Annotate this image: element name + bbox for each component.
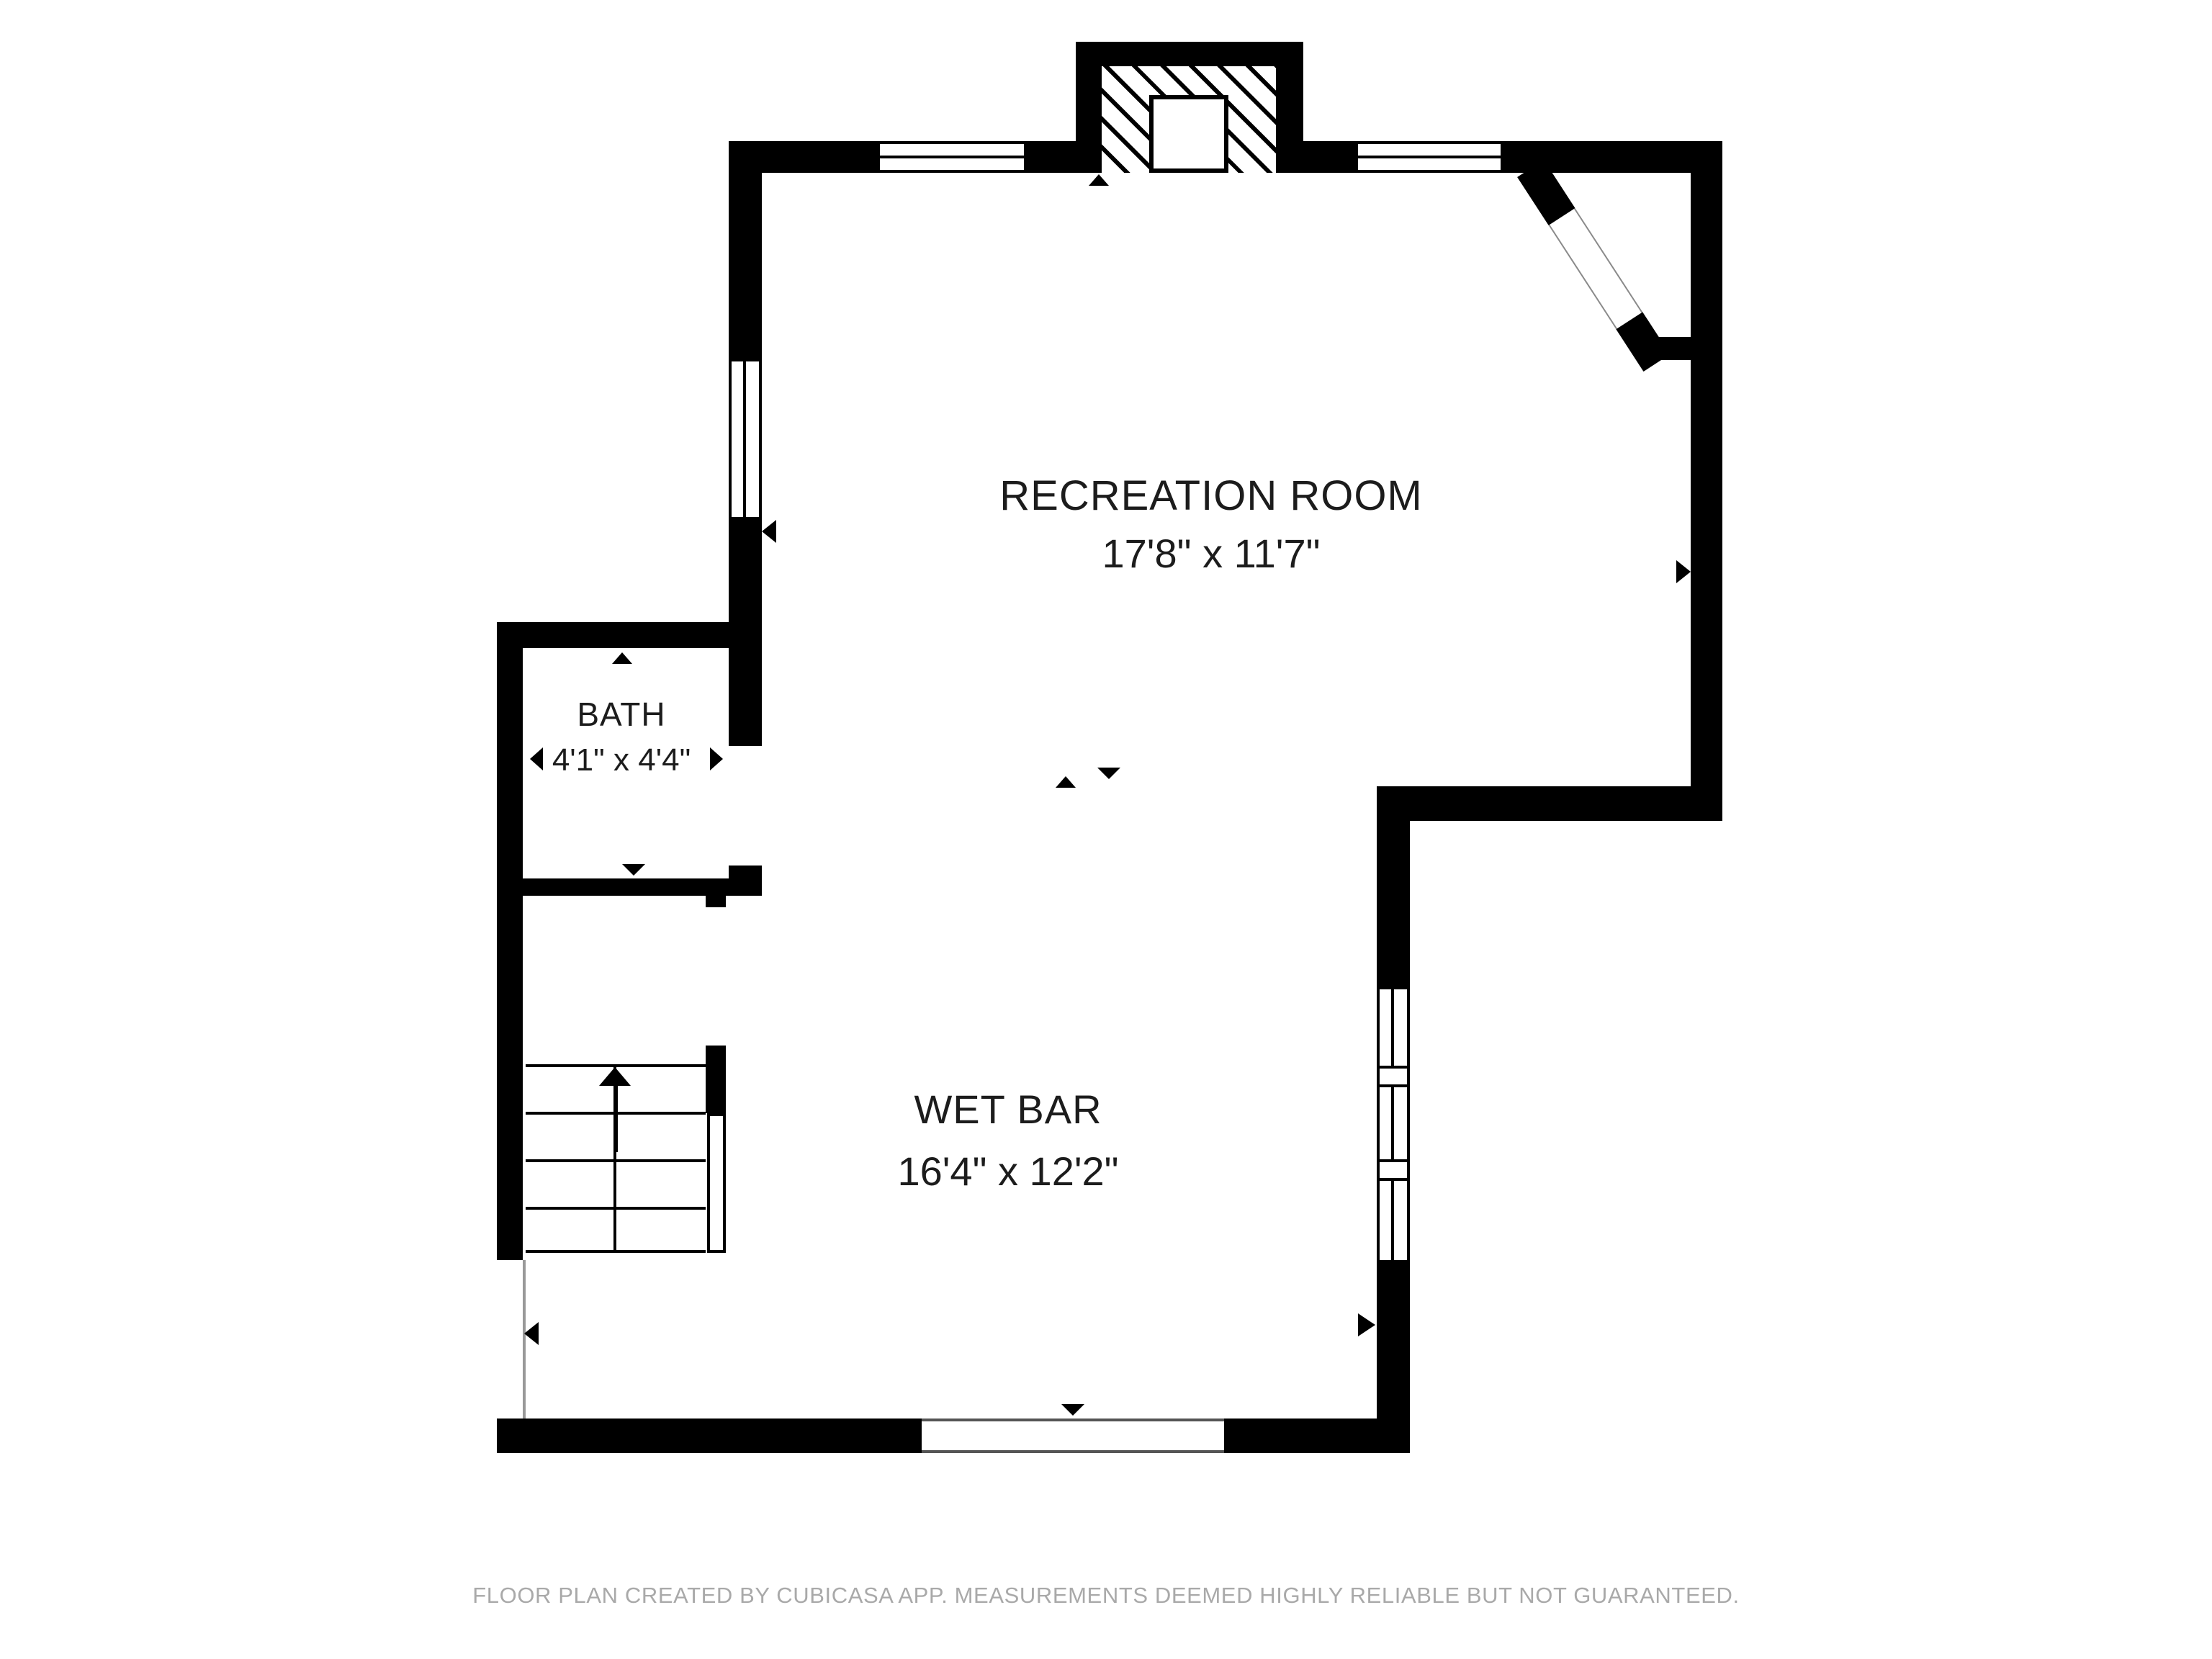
- room-label-wetbar: WET BAR 16'4" x 12'2": [792, 1089, 1224, 1194]
- dim-arrow-up-icon: [1056, 776, 1076, 788]
- stair-railing: [707, 1113, 726, 1253]
- wall-left-upper: [729, 141, 762, 353]
- staircase: [526, 1064, 706, 1253]
- dim-arrow-right-icon: [1358, 1313, 1375, 1336]
- window-divider: [1380, 1066, 1407, 1087]
- dim-arrow-left-icon: [762, 520, 776, 543]
- dim-arrow-left-icon: [524, 1322, 539, 1345]
- wall-left-mid: [729, 526, 762, 746]
- window-pane-line: [1391, 989, 1394, 1260]
- wall-bath-top: [497, 622, 729, 648]
- room-label-bath: BATH 4'1" x 4'4": [520, 697, 723, 778]
- window-top-left: [871, 141, 1033, 173]
- window-left: [729, 353, 762, 526]
- diagonal-door: [1517, 160, 1670, 372]
- bath-arrow-up-icon: [612, 652, 632, 664]
- wall-step: [1377, 786, 1722, 821]
- dim-arrow-up-icon: [1089, 174, 1109, 186]
- room-name: RECREATION ROOM: [999, 472, 1423, 521]
- bath-arrow-down-icon: [622, 864, 645, 876]
- room-name: WET BAR: [914, 1089, 1102, 1132]
- fireplace-flue: [1149, 95, 1228, 173]
- room-dimensions: 16'4" x 12'2": [897, 1151, 1118, 1194]
- window-top-right: [1349, 141, 1509, 173]
- dim-arrow-right-icon: [1676, 560, 1691, 583]
- window-wetbar: [1377, 986, 1410, 1263]
- window-pane-line: [743, 356, 746, 523]
- window-pane-line: [874, 155, 1030, 158]
- dim-arrow-down-icon: [1097, 768, 1120, 779]
- stair-arrow-stem: [613, 1084, 617, 1152]
- wall-bottom-right: [1224, 1419, 1410, 1453]
- wall-bottom-left: [497, 1419, 922, 1453]
- floor-plan: RECREATION ROOM 17'8" x 11'7" BATH 4'1" …: [0, 0, 2212, 1659]
- room-dimensions: 4'1" x 4'4": [552, 743, 691, 778]
- wall-wetbar-right-upper: [1377, 821, 1410, 986]
- door-leaf: [1549, 208, 1643, 329]
- scale-wrapper: RECREATION ROOM 17'8" x 11'7" BATH 4'1" …: [0, 0, 2212, 1659]
- wall-bath-left: [497, 622, 523, 1260]
- wall-bath-bottom: [497, 878, 762, 896]
- wall-stair-door-stub: [706, 896, 726, 907]
- window-bottom-opening: [922, 1419, 1224, 1453]
- window-pane-line: [1352, 155, 1506, 158]
- room-dimensions: 17'8" x 11'7": [1102, 530, 1321, 579]
- stair-up-arrow-icon: [599, 1067, 631, 1086]
- room-label-recreation: RECREATION ROOM 17'8" x 11'7": [923, 472, 1499, 579]
- dim-arrow-down-icon: [1061, 1404, 1084, 1416]
- window-divider: [1380, 1159, 1407, 1181]
- footer-disclaimer: FLOOR PLAN CREATED BY CUBICASA APP. MEAS…: [0, 1584, 2212, 1610]
- wall-left-door-stub: [729, 866, 762, 878]
- room-name: BATH: [577, 697, 665, 732]
- wall-stair-side: [706, 1046, 726, 1113]
- wall-right: [1691, 141, 1722, 821]
